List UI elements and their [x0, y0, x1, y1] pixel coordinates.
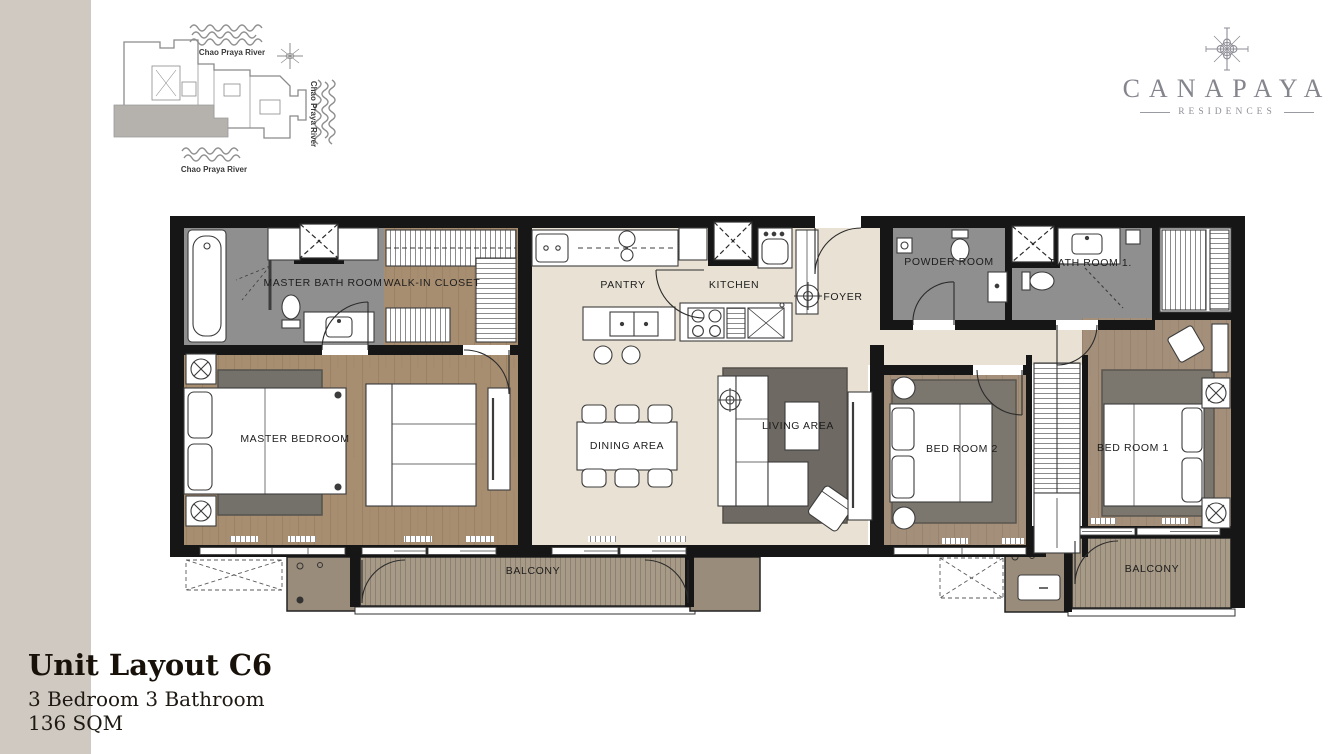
vanity-master-bath	[304, 312, 374, 342]
pantry-counter	[532, 230, 678, 266]
ac-closet-right	[690, 557, 760, 611]
tv-console-living	[848, 392, 872, 520]
logo-rule-left	[1140, 112, 1170, 113]
side-table-bed2-bottom	[893, 507, 915, 529]
label-walk-in-closet: WALK-IN CLOSET	[384, 277, 481, 289]
dining-chair	[615, 469, 639, 487]
brand-subtitle: RESIDENCES	[1178, 107, 1276, 117]
bath-niche-left	[268, 228, 300, 260]
brand-logo: CANAPAYA RESIDENCES	[1122, 26, 1332, 122]
shower-head	[1126, 230, 1140, 244]
compass-icon	[277, 43, 303, 69]
label-balcony-right: BALCONY	[1125, 563, 1179, 575]
label-dining-area: DINING AREA	[590, 440, 664, 452]
site-key-plan: Chao Praya River Chao Praya River Chao P…	[102, 20, 374, 195]
brand-name: CANAPAYA	[1122, 74, 1332, 104]
dining-chair	[582, 405, 606, 423]
left-margin-stripe	[0, 0, 91, 754]
floor-plan: MASTER BATH ROOM WALK-IN CLOSET PANTRY K…	[170, 208, 1245, 628]
site-plan-drawing: Chao Praya River Chao Praya River Chao P…	[102, 20, 374, 195]
label-pantry: PANTRY	[600, 279, 645, 291]
toilet-master-bath	[282, 295, 300, 328]
unit-area: 136 SQM	[28, 711, 272, 735]
side-table-master-top	[186, 354, 216, 384]
stool	[622, 346, 640, 364]
toilet-bath1	[1022, 272, 1054, 290]
settee-master	[366, 384, 476, 506]
wardrobe-bed1	[1160, 228, 1231, 312]
hall-closet	[1034, 363, 1080, 553]
unit-subtitle: 3 Bedroom 3 Bathroom	[28, 687, 272, 711]
page: { "site_plan": { "river_top": "Chao Pray…	[0, 0, 1342, 754]
label-bath-room-1: BATH ROOM 1.	[1050, 257, 1132, 269]
dining-chair	[582, 469, 606, 487]
dining-chair	[615, 405, 639, 423]
label-bed-room-2: BED ROOM 2	[926, 443, 998, 455]
label-kitchen: KITCHEN	[709, 279, 759, 291]
tv-console-master	[488, 388, 510, 490]
bathtub	[188, 230, 226, 342]
label-balcony-main: BALCONY	[506, 565, 560, 577]
logo-ornament-icon	[1204, 26, 1250, 72]
side-table-bed2-top	[893, 377, 915, 399]
bath-niche-right	[338, 228, 378, 260]
unit-highlight	[114, 105, 228, 137]
dining-chair	[648, 405, 672, 423]
washer-unit	[758, 228, 792, 268]
river-label-top: Chao Praya River	[199, 48, 265, 57]
river-waves-bottom	[182, 148, 240, 161]
balcony-right-rail	[1068, 609, 1235, 616]
speaker-unit-top	[1202, 378, 1230, 408]
title-block: Unit Layout C6 3 Bedroom 3 Bathroom 136 …	[28, 648, 272, 736]
label-master-bedroom: MASTER BEDROOM	[240, 433, 349, 445]
ac-closet-left	[287, 557, 360, 611]
side-table-master-bottom	[186, 496, 216, 526]
unit-title: Unit Layout C6	[28, 648, 272, 682]
desk-bed1	[1212, 324, 1228, 372]
bed-1	[1104, 404, 1204, 506]
stool	[594, 346, 612, 364]
label-living-area: LIVING AREA	[762, 420, 834, 432]
balcony-main-rail	[355, 607, 695, 614]
label-foyer: FOYER	[823, 291, 862, 303]
label-master-bath: MASTER BATH ROOM	[263, 277, 382, 289]
kitchen-niche	[679, 228, 707, 260]
kitchen-counter	[680, 303, 792, 341]
river-waves-top	[190, 25, 262, 45]
dining-chair	[648, 469, 672, 487]
label-bed-room-1: BED ROOM 1	[1097, 442, 1169, 454]
speaker-unit-bottom	[1202, 498, 1230, 528]
floor-plan-drawing: MASTER BATH ROOM WALK-IN CLOSET PANTRY K…	[170, 208, 1245, 628]
label-powder-room: POWDER ROOM	[904, 256, 993, 268]
logo-rule-right	[1284, 112, 1314, 113]
river-label-right: Chao Praya River	[309, 81, 318, 147]
water-heater	[897, 238, 912, 253]
river-label-bottom: Chao Praya River	[181, 165, 247, 174]
